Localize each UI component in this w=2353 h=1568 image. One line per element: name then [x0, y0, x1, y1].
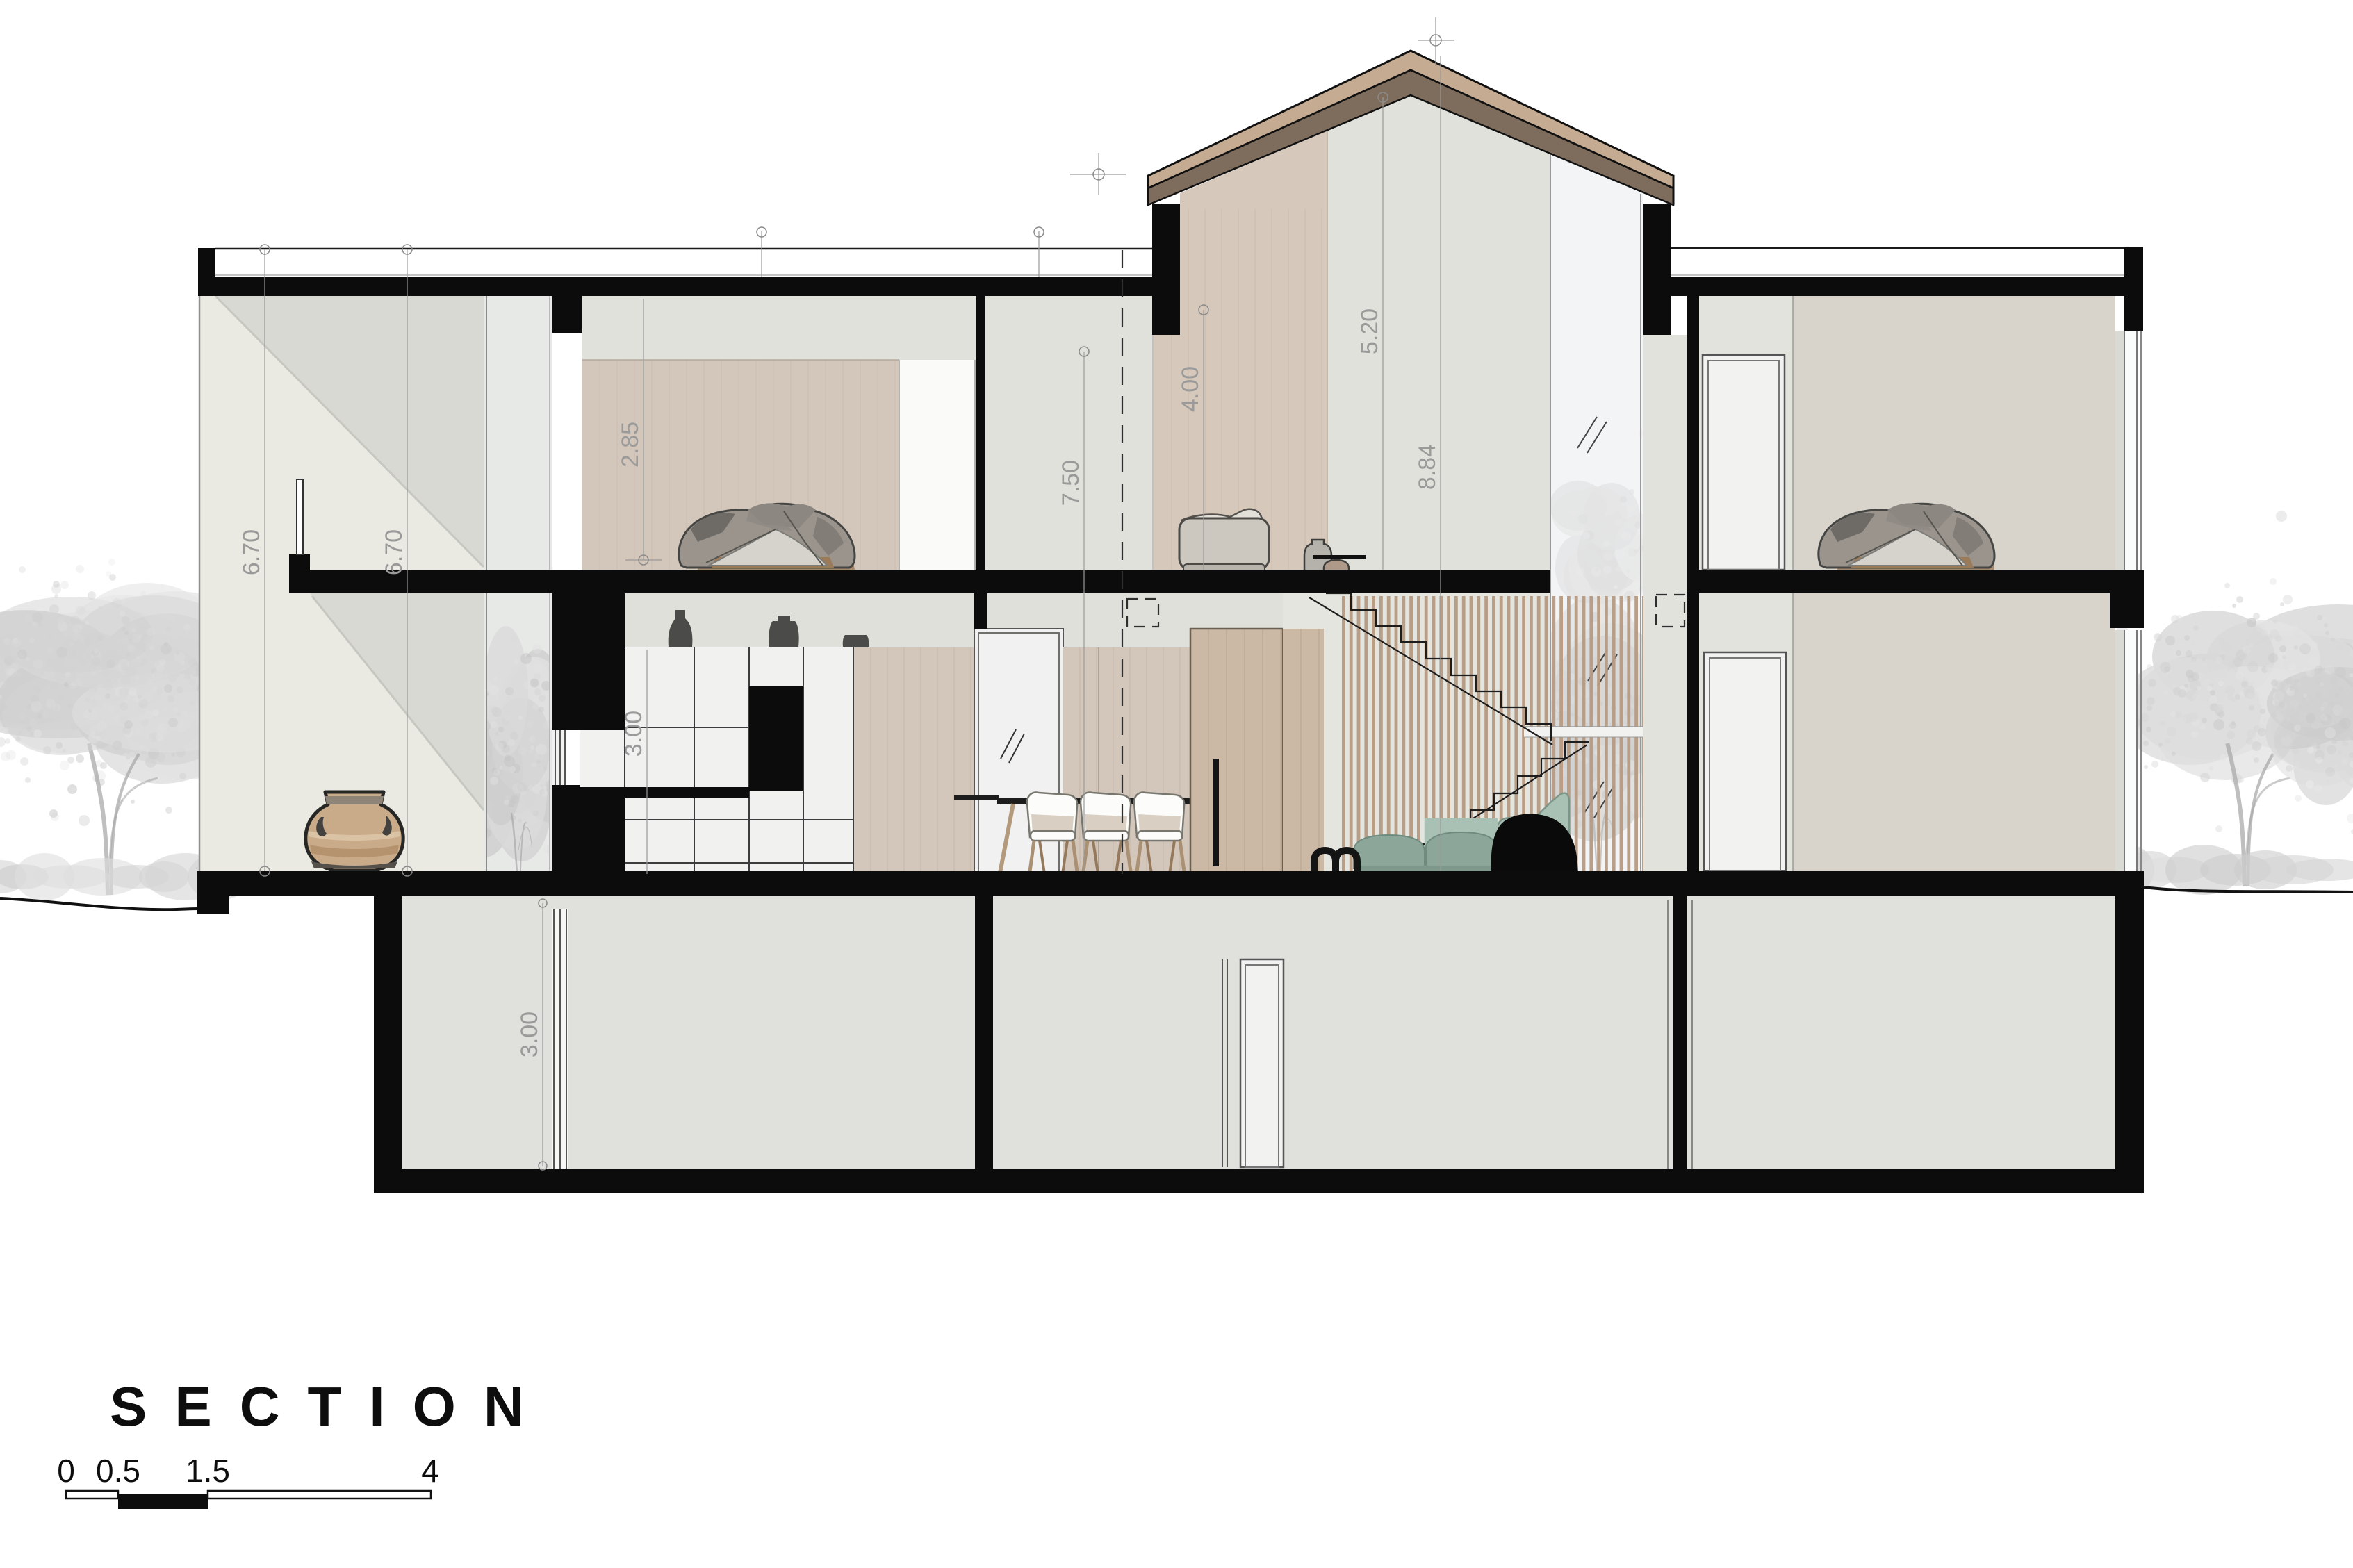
svg-text:6.70: 6.70	[381, 529, 407, 575]
svg-text:5.20: 5.20	[1356, 308, 1383, 354]
svg-text:4: 4	[421, 1453, 439, 1489]
svg-text:0: 0	[57, 1453, 75, 1489]
svg-text:6.70: 6.70	[238, 529, 265, 575]
svg-text:3.00: 3.00	[621, 711, 647, 757]
svg-text:3.00: 3.00	[516, 1012, 543, 1057]
svg-text:1.5: 1.5	[186, 1453, 230, 1489]
svg-text:7.50: 7.50	[1058, 460, 1084, 506]
svg-text:2.85: 2.85	[617, 422, 643, 468]
svg-text:0.5: 0.5	[96, 1453, 140, 1489]
svg-text:8.84: 8.84	[1414, 444, 1441, 490]
svg-text:SECTION: SECTION	[110, 1376, 552, 1437]
svg-text:4.00: 4.00	[1177, 366, 1204, 412]
